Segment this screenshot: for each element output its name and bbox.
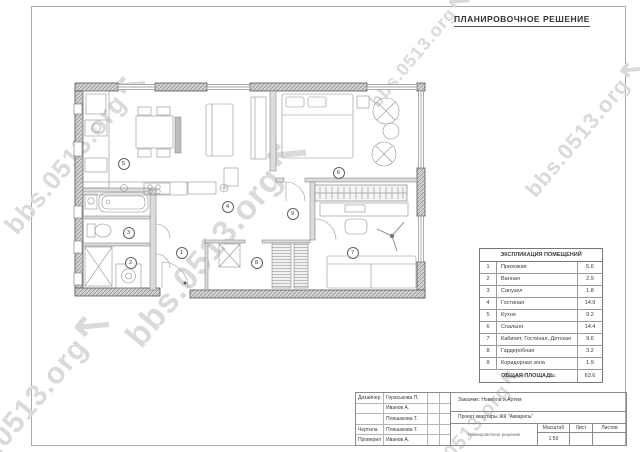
bedroom-furniture	[282, 94, 399, 166]
project-name: Проект квартиры ЖК "Акварель"	[451, 412, 626, 424]
living-furniture	[206, 97, 266, 186]
table-row: 7 Кабинет, Гостиная, Детская 9.6	[480, 334, 602, 346]
explication-title: ЭКСПЛИКАЦИЯ ПОМЕЩЕНИЙ	[480, 249, 602, 262]
sheet-cell: Лист	[570, 424, 593, 445]
signature-row: Дизайнер Гераськова П.	[356, 393, 450, 404]
table-row: 5 Кухня 9.2	[480, 310, 602, 322]
room-number-2: 2	[125, 257, 137, 269]
page-title: ПЛАНИРОВОЧНОЕ РЕШЕНИЕ	[452, 9, 592, 27]
signature-row: Проверил Иванов А.	[356, 435, 450, 445]
client-name: Заказчик: Новелла и Артем	[451, 393, 626, 412]
floor-plan	[0, 0, 640, 452]
title-block-signatures: Дизайнер Гераськова П. Иванов А. Плешако…	[356, 393, 451, 445]
table-row: 1 Прихожая 5.6	[480, 262, 602, 274]
room-number-3: 3	[123, 227, 135, 239]
signature-row: Иванов А.	[356, 404, 450, 415]
title-block-info: Заказчик: Новелла и Артем Проект квартир…	[451, 393, 626, 445]
room-number-5: 5	[118, 158, 130, 170]
signature-row: Чертила Плешакова Т.	[356, 425, 450, 436]
document-name: Планировочное решение	[451, 424, 538, 445]
room-number-6: 6	[333, 167, 345, 179]
title-block: Дизайнер Гераськова П. Иванов А. Плешако…	[355, 392, 627, 446]
room-number-4: 4	[222, 201, 234, 213]
total-row: ОБЩАЯ ПЛОЩАДЬ: 63.6	[480, 370, 602, 382]
closet-rail	[315, 185, 407, 201]
room-number-9: 9	[287, 208, 299, 220]
scale-value: 1:50	[538, 433, 569, 445]
table-row: 6 Спальня 14.4	[480, 322, 602, 334]
wardrobe-furniture	[184, 243, 309, 288]
drawing-sheet: bbs.0513.org↖ bbs.0513.org↖ bbs.0513.org…	[0, 0, 640, 452]
doors	[156, 182, 336, 288]
scale-cell: Масштаб 1:50	[538, 424, 570, 445]
table-row: 8 Гардеробная 3.2	[480, 346, 602, 358]
signature-row: Плешакова Т.	[356, 414, 450, 425]
sheets-cell: Листов	[593, 424, 626, 445]
table-row: 4 Гостиная 14.9	[480, 298, 602, 310]
room-number-8: 8	[251, 257, 263, 269]
explication-table: ЭКСПЛИКАЦИЯ ПОМЕЩЕНИЙ 1 Прихожая 5.6 2 В…	[479, 248, 603, 383]
table-row: 3 Санузел 1.8	[480, 286, 602, 298]
room-number-7: 7	[347, 247, 359, 259]
table-row: 2 Ванная 2.9	[480, 274, 602, 286]
table-row: 9 Коридорная зона 1.9	[480, 358, 602, 370]
office-furniture	[320, 203, 416, 288]
room-number-1: 1	[176, 247, 188, 259]
bathroom-fixtures	[85, 193, 148, 288]
